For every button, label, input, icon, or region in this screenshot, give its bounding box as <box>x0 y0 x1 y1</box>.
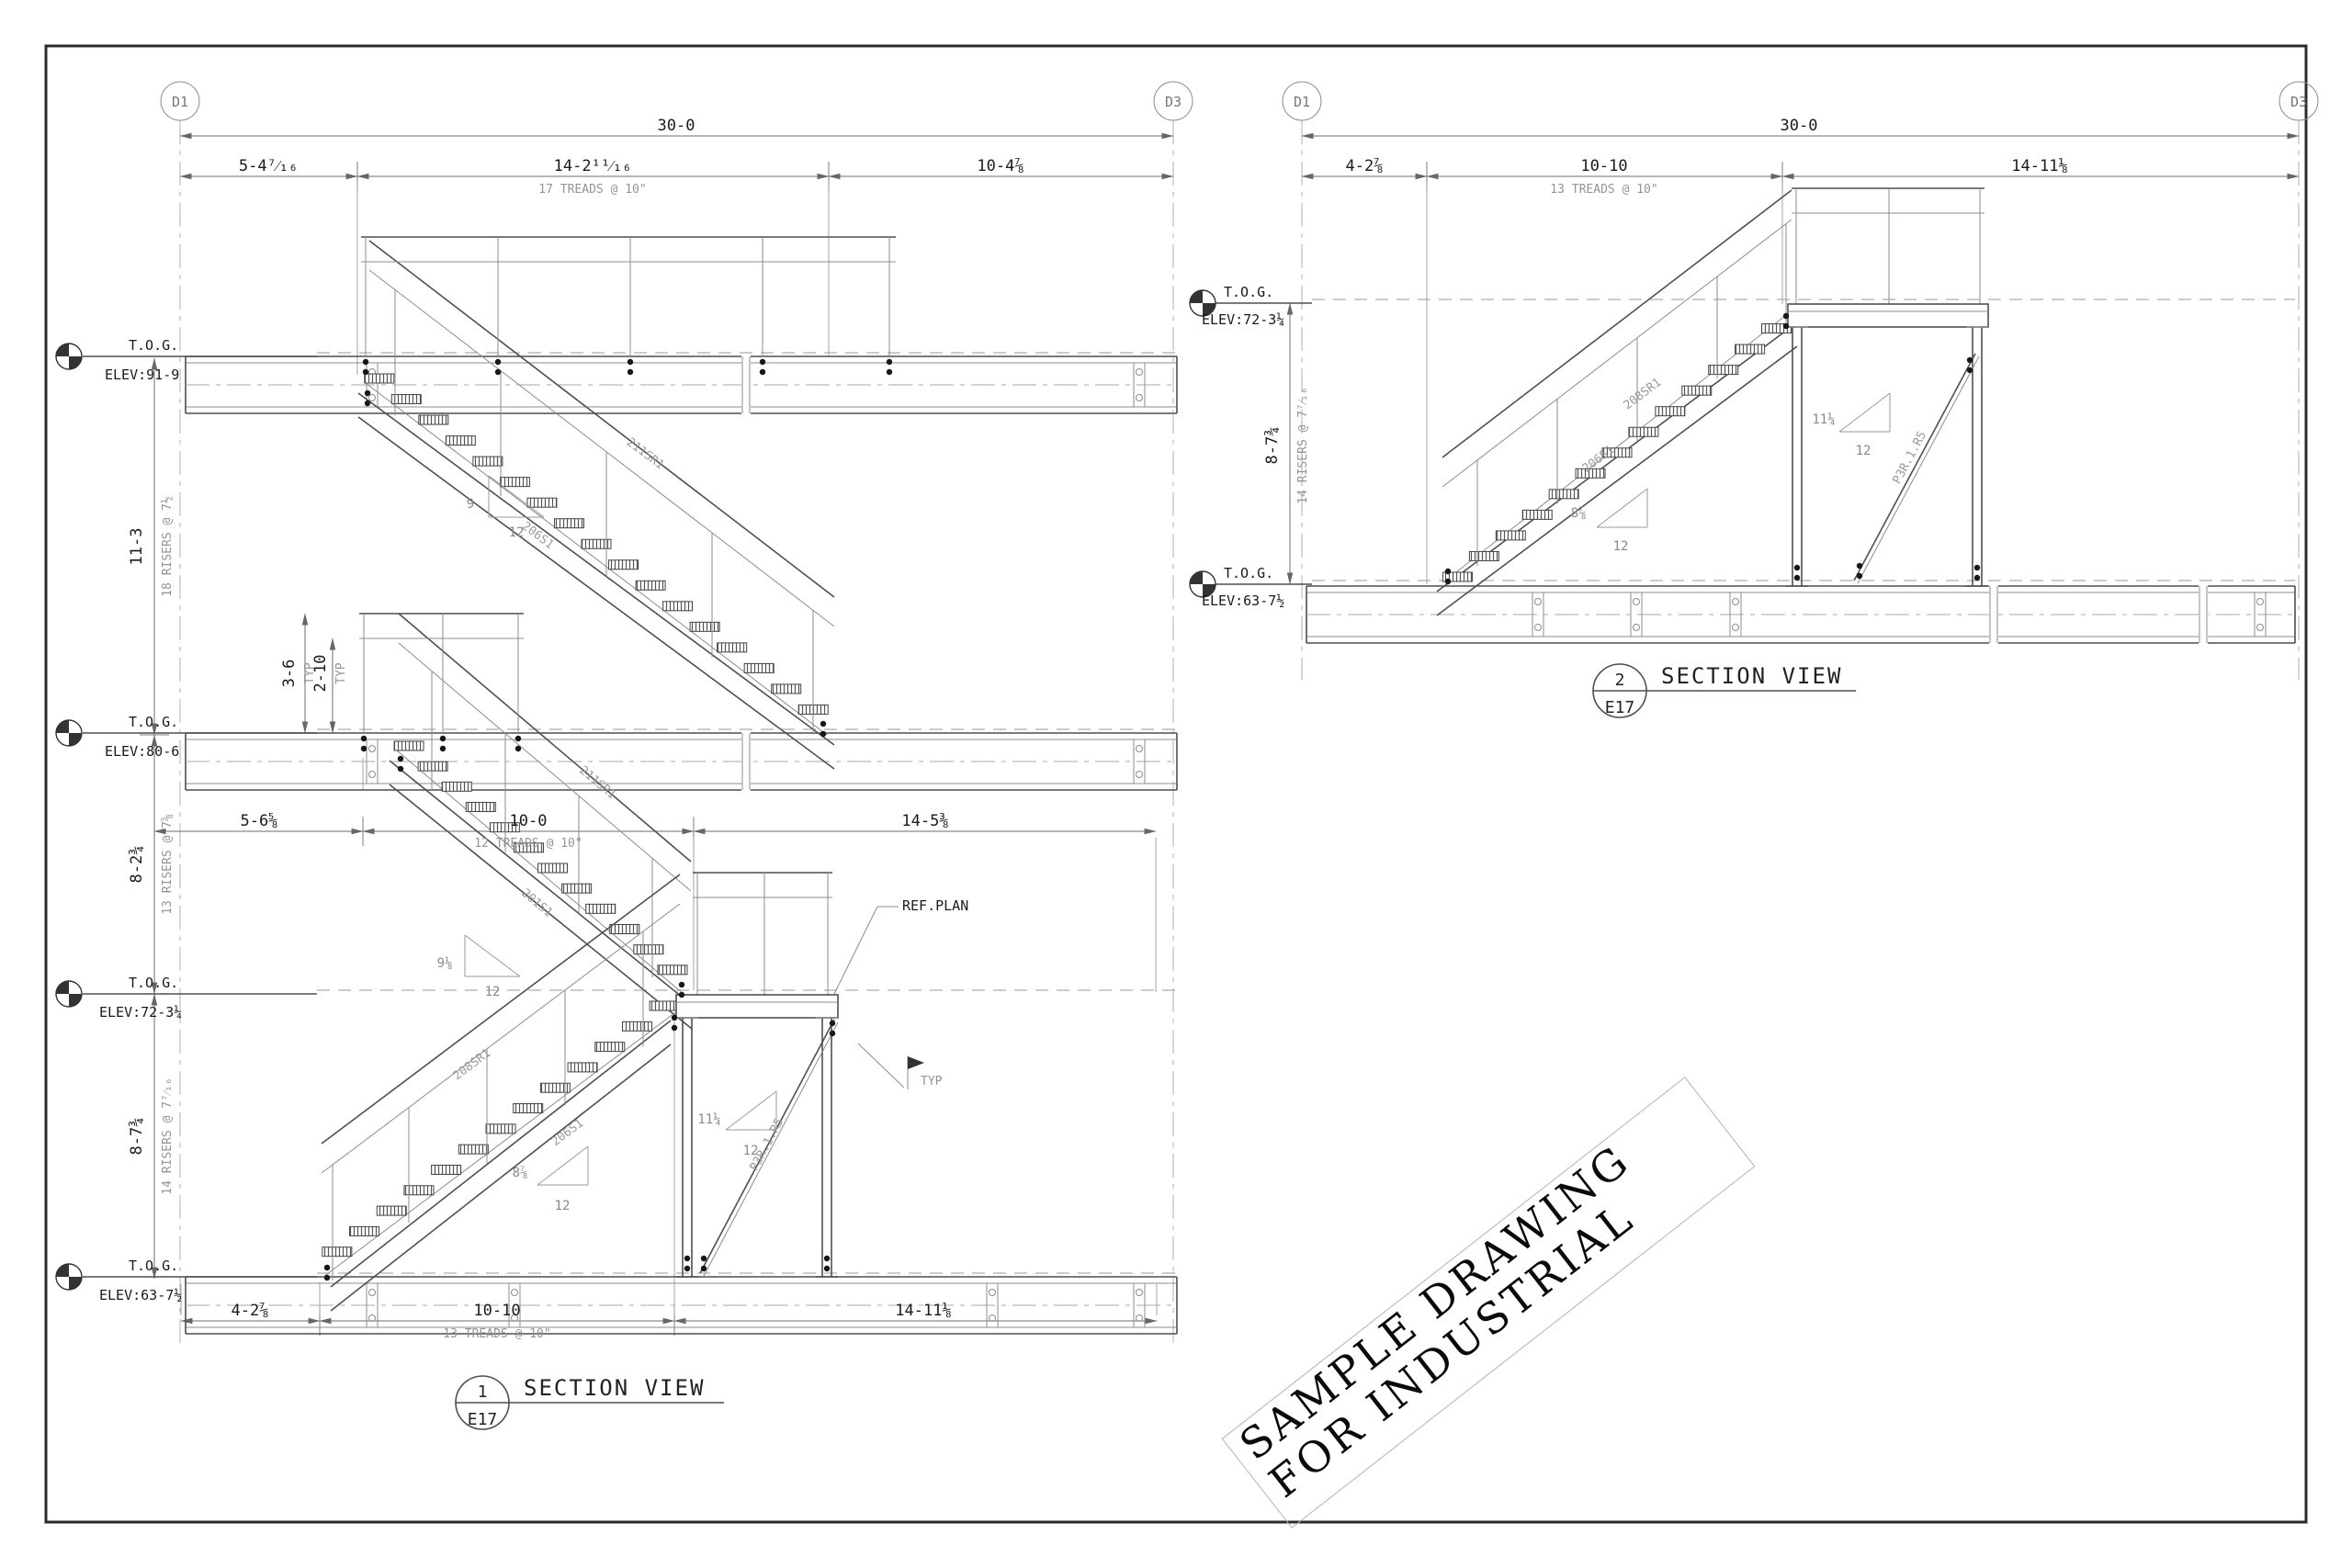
slope-run: 12 <box>555 1199 571 1213</box>
slope-rise: 11¼ <box>1812 412 1835 427</box>
member-label: 211SR1 <box>576 763 618 802</box>
dim: 14-11⅛ <box>895 1302 951 1320</box>
dim-note: 17 TREADS @ 10" <box>538 183 646 197</box>
dim: 10-10 <box>1580 157 1627 175</box>
typ-flag-icon <box>908 1056 924 1069</box>
dim: 14-5⅜ <box>901 812 948 830</box>
title-number: 2 <box>1615 671 1625 690</box>
dim: 14-2¹¹⁄₁₆ <box>554 157 632 175</box>
elev-value: ELEV:91-9 <box>105 367 179 383</box>
grid-label: D1 <box>172 94 188 110</box>
linework <box>56 120 2299 1346</box>
view-title: SECTION VIEW <box>1661 663 1842 689</box>
typ-callout: TYP <box>921 1075 943 1089</box>
leader <box>834 907 877 994</box>
dim: 4-2⅞ <box>1346 157 1384 175</box>
vert-dim: 8-7¾ <box>1263 427 1282 465</box>
dim: 5-6⅝ <box>241 812 278 830</box>
member-label: 211SR1 <box>624 435 667 472</box>
slope-rise: 9⅛ <box>437 956 453 971</box>
slope-rise: 11¼ <box>697 1112 720 1127</box>
vert-dim-note: 14 RISERS @ 7⁷⁄₁₆ <box>1296 387 1310 503</box>
vert-dim-note: 14 RISERS @ 7⁷⁄₁₆ <box>161 1077 175 1194</box>
rail-dim-note: TYP <box>334 662 348 684</box>
elev-value: ELEV:72-3¼ <box>99 1004 182 1021</box>
elev-value: ELEV:63-7½ <box>99 1287 182 1303</box>
slope-rise: 9 <box>467 497 474 512</box>
member-label: 201S1 <box>518 886 555 920</box>
elev-label: T.O.G. <box>129 337 178 354</box>
dim: 5-4⁷⁄₁₆ <box>239 157 298 175</box>
brace-label: P3R.1.R5 <box>1891 429 1930 486</box>
elev-label: T.O.G. <box>1224 284 1273 300</box>
elev-label: T.O.G. <box>129 1258 178 1274</box>
elev-label: T.O.G. <box>1224 565 1273 581</box>
dim: 10-10 <box>473 1302 520 1320</box>
elev-value: ELEV:80-6 <box>105 743 179 760</box>
dim: 10-4⅞ <box>977 157 1023 175</box>
dim-note: 12 TREADS @ 10" <box>474 837 582 851</box>
dim-overall: 30-0 <box>1781 117 1818 135</box>
member-label: 206S1 <box>549 1116 586 1149</box>
slope-run: 12 <box>1613 539 1629 554</box>
title-number: 1 <box>478 1382 488 1402</box>
rail-dim: 2-10 <box>311 655 330 693</box>
section-view-1: D1 D3 30-0 5-4⁷⁄₁₆ 14-2¹¹⁄₁₆ 17 TREADS @… <box>99 82 1193 1429</box>
slope-run: 12 <box>1856 444 1871 458</box>
dim-note: 13 TREADS @ 10" <box>1550 183 1657 197</box>
leader <box>858 1043 904 1088</box>
slope-run: 12 <box>485 985 501 999</box>
dim: 4-2⅞ <box>232 1302 269 1320</box>
grid-label: D3 <box>2290 94 2307 110</box>
dim-note: 13 TREADS @ 10" <box>443 1327 550 1341</box>
elev-value: ELEV:63-7½ <box>1202 592 1284 609</box>
dim: 14-11⅛ <box>2011 157 2067 175</box>
dim-overall: 30-0 <box>658 117 695 135</box>
title-sheet-ref: E17 <box>468 1410 498 1429</box>
grid-label: D3 <box>1165 94 1182 110</box>
ref-plan-callout: REF.PLAN <box>902 897 968 914</box>
grid-label: D1 <box>1294 94 1310 110</box>
elev-value: ELEV:72-3¼ <box>1202 311 1284 328</box>
vert-dim-note: 13 RISERS @ 7⅝ <box>161 814 175 915</box>
drawing-sheet: D1 D3 30-0 5-4⁷⁄₁₆ 14-2¹¹⁄₁₆ 17 TREADS @… <box>0 0 2352 1568</box>
vert-dim: 8-7¾ <box>128 1118 146 1156</box>
slope-rise: 8⅞ <box>1571 506 1587 521</box>
rail-dim: 3-6 <box>280 660 299 688</box>
vert-dim: 11-3 <box>128 528 146 566</box>
vert-dim: 8-2¾ <box>128 846 146 884</box>
section-view-2: D1 D3 30-0 4-2⅞ 10-10 13 TREADS @ 10" 14… <box>1202 82 2318 717</box>
slope-rise: 8⅞ <box>513 1166 528 1180</box>
vert-dim-note: 18 RISERS @ 7½ <box>161 496 175 597</box>
view-title: SECTION VIEW <box>524 1375 705 1401</box>
section-views-drawing: D1 D3 30-0 5-4⁷⁄₁₆ 14-2¹¹⁄₁₆ 17 TREADS @… <box>0 0 2352 1568</box>
title-sheet-ref: E17 <box>1605 698 1635 717</box>
elev-label: T.O.G. <box>129 975 178 991</box>
elev-label: T.O.G. <box>129 714 178 730</box>
dim: 10-0 <box>510 812 548 830</box>
